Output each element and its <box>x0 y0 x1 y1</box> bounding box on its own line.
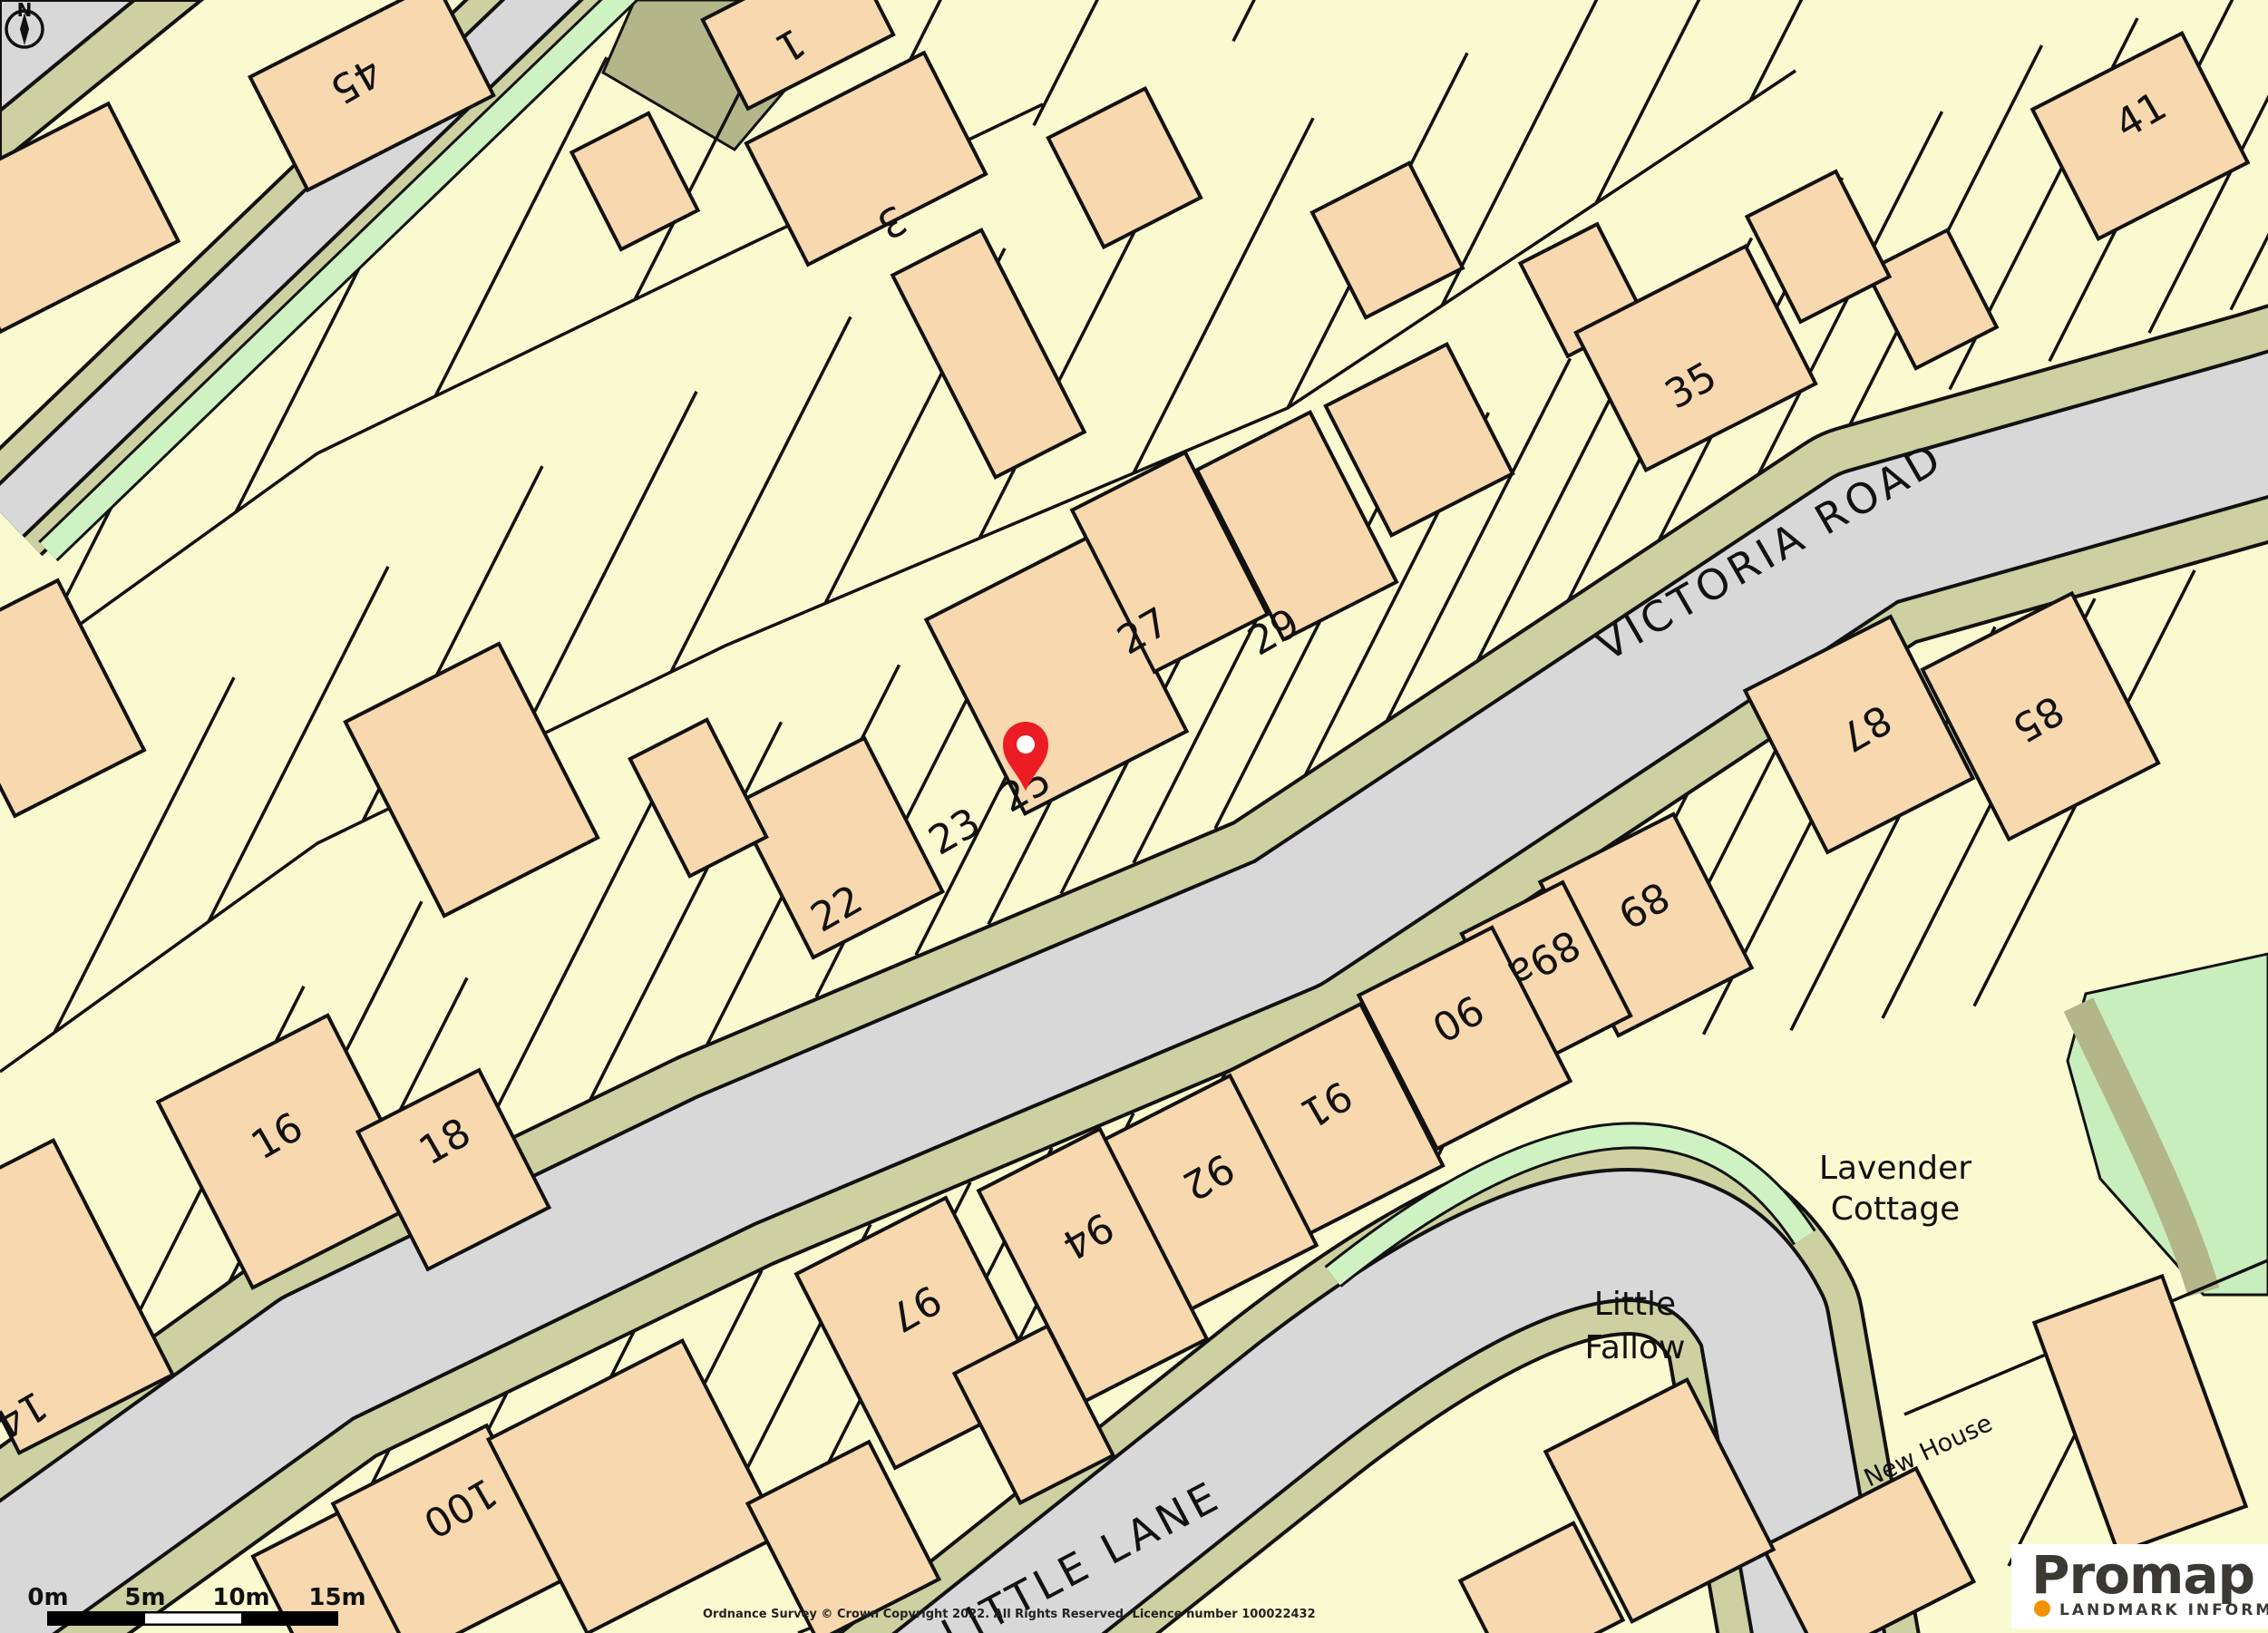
place-label-lavender-cottage: Lavender <box>1819 1150 1971 1187</box>
landmark-dot-icon <box>2034 1600 2050 1617</box>
promap-logo: Promap LANDMARK INFORMATION <box>2011 1544 2268 1628</box>
scale-label-0: 0m <box>27 1584 68 1611</box>
landmark-tagline: LANDMARK INFORMATION <box>2059 1601 2268 1619</box>
place-label-little-fallow: Little <box>1594 1286 1676 1323</box>
promap-wordmark: Promap <box>2031 1544 2254 1606</box>
scale-label-5: 5m <box>124 1584 165 1611</box>
pin-hole <box>1017 735 1035 753</box>
place-label-lavender-cottage: Cottage <box>1831 1191 1960 1228</box>
map-viewport[interactable]: 451335412729252322161814100979492919089a… <box>0 0 2268 1633</box>
scale-label-10: 10m <box>212 1584 269 1611</box>
map-canvas[interactable]: 451335412729252322161814100979492919089a… <box>0 0 2268 1633</box>
scale-label-15: 15m <box>308 1584 365 1611</box>
copyright-notice: Ordnance Survey © Crown Copyright 2022. … <box>703 1608 1316 1621</box>
place-label-little-fallow: Fallow <box>1585 1329 1686 1366</box>
